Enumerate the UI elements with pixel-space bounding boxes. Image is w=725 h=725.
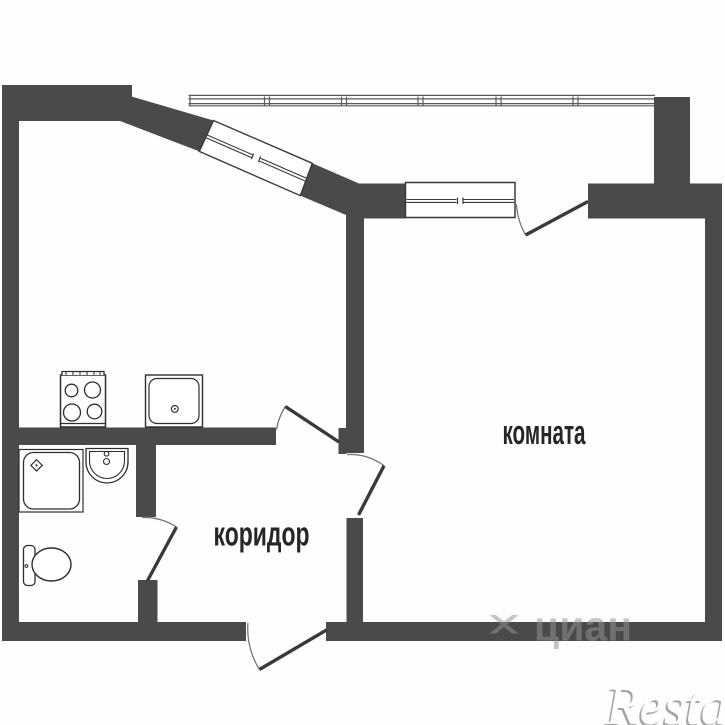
svg-text:циан: циан	[534, 603, 632, 650]
svg-text:комната: комната	[503, 414, 586, 452]
svg-text:Restate: Restate	[605, 675, 725, 725]
svg-text:коридор: коридор	[214, 516, 310, 554]
